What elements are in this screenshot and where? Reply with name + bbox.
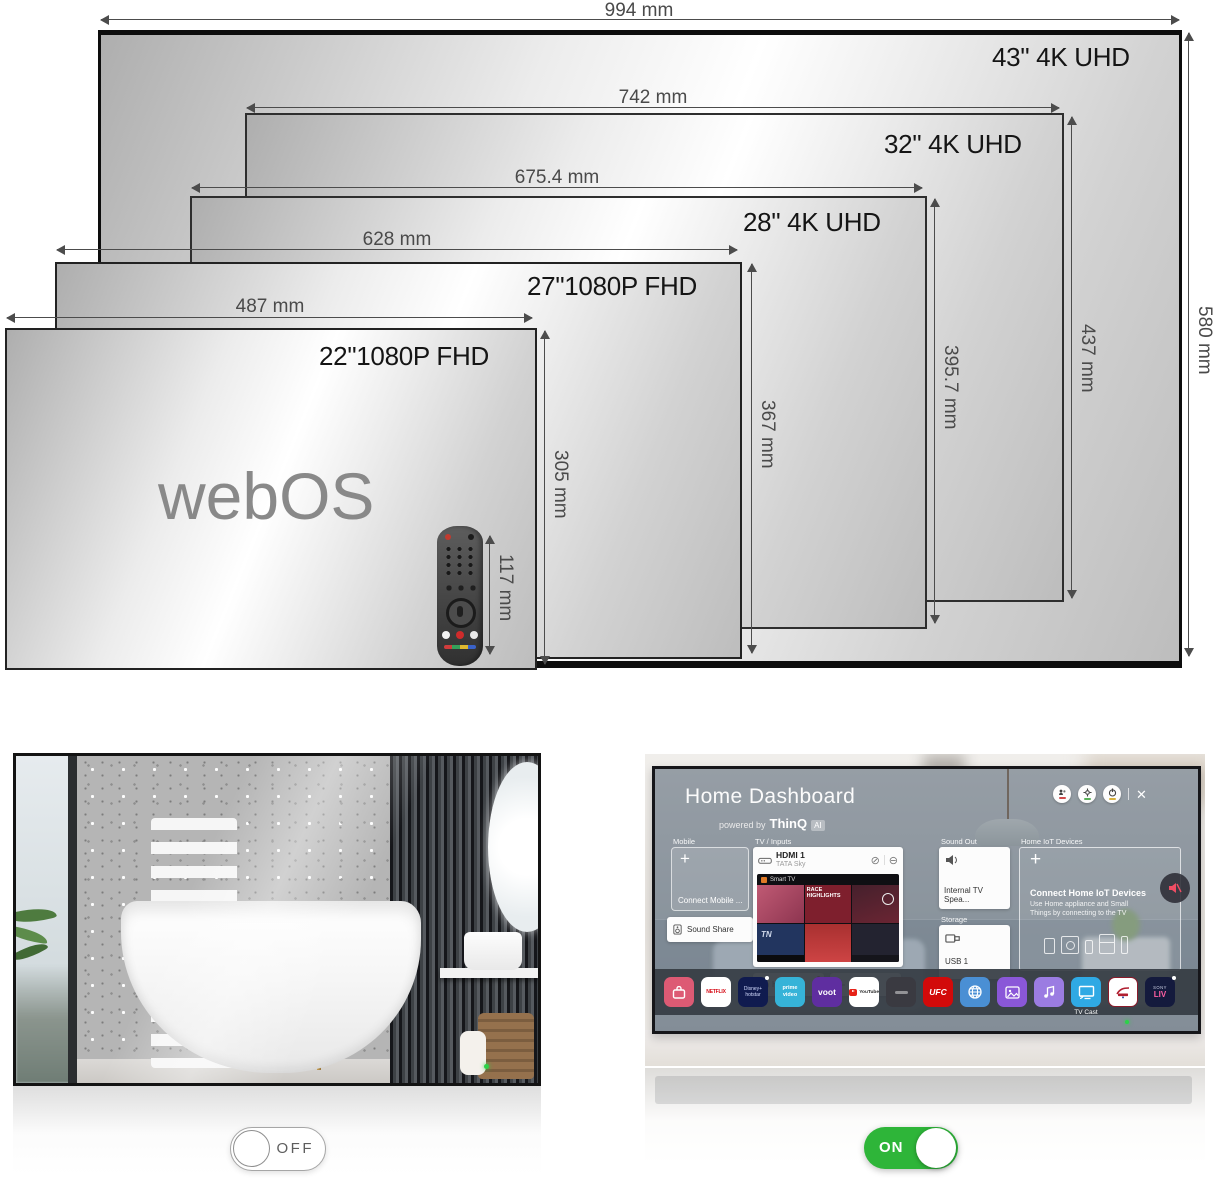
- mirror-glare: [16, 756, 538, 1083]
- toggle-knob[interactable]: [916, 1128, 956, 1168]
- app-sony-liv[interactable]: SONY LIV: [1145, 977, 1175, 1007]
- thumbnail: CHARLO vs MONTIEL: [852, 924, 899, 962]
- app-tv-cast[interactable]: TV Cast: [1071, 977, 1101, 1007]
- mute-button[interactable]: [1160, 873, 1190, 903]
- tv-cast-icon: [1078, 985, 1095, 1000]
- toggle-on-label: ON: [879, 1139, 904, 1156]
- phone-outline-icon: [1085, 940, 1093, 954]
- section-label-home-iot: Home IoT Devices: [1021, 837, 1083, 846]
- youtube-wordmark: YouTube: [859, 990, 879, 995]
- netflix-wordmark: NETFLIX: [706, 989, 725, 995]
- height-arrow-27: [751, 264, 752, 653]
- plus-icon: +: [1030, 849, 1041, 871]
- gallery-icon: [1005, 986, 1020, 999]
- section-label-sound-out: Sound Out: [941, 837, 977, 846]
- prime-wordmark-2: video: [783, 992, 797, 999]
- power-button[interactable]: [1103, 785, 1121, 803]
- height-label-27: 367 mm: [756, 400, 778, 469]
- app-voot[interactable]: voot: [812, 977, 842, 1007]
- remote-height-label: 117 mm: [494, 554, 516, 621]
- remote-power-button-icon: [445, 534, 451, 540]
- app-sports-tile[interactable]: [1108, 977, 1138, 1007]
- dashboard-topbar: ✕: [1053, 785, 1147, 803]
- size-label-22: 22"1080P FHD: [319, 341, 489, 372]
- prime-wordmark-1: prime: [783, 985, 798, 992]
- sound-share-card[interactable]: Sound Share: [667, 917, 753, 942]
- speaker-outline-icon: [1044, 938, 1055, 954]
- remote-outline-icon: [1121, 936, 1128, 954]
- remote-height-arrow: [489, 536, 490, 654]
- section-label-storage: Storage: [941, 915, 967, 924]
- width-label-32: 742 mm: [553, 87, 753, 109]
- thinq-brand: ThinQ: [770, 816, 808, 831]
- product-infographic: webOS 994 mm 742 mm 675.4 mm 628 mm 487 …: [0, 0, 1214, 1191]
- header-divider: [884, 855, 885, 865]
- thumbnail-caption: RACE HIGHLIGHTS: [807, 887, 841, 900]
- thumbnail: [852, 885, 899, 923]
- speaker-icon: [945, 854, 959, 866]
- size-label-32: 32" 4K UHD: [884, 129, 1022, 160]
- toggle-knob[interactable]: [233, 1130, 270, 1167]
- powered-by-line: powered by ThinQ AI: [719, 816, 825, 831]
- hdmi1-title: HDMI 1: [776, 851, 806, 860]
- height-label-43: 580 mm: [1193, 306, 1214, 375]
- iot-appliance-icons: [1044, 934, 1128, 954]
- ai-badge: AI: [811, 820, 825, 831]
- usb-icon: [945, 933, 961, 944]
- globe-icon: [967, 984, 983, 1000]
- washer-outline-icon: [1061, 936, 1079, 954]
- hdmi1-input-card[interactable]: HDMI 1 TATA Sky ⊘ ⊖ Smart TV: [753, 847, 903, 967]
- power-toggle-on[interactable]: ON: [864, 1127, 958, 1169]
- thumbnail: RACE HIGHLIGHTS: [805, 885, 852, 923]
- app-ufc[interactable]: UFC: [923, 977, 953, 1007]
- power-led: [1125, 1020, 1129, 1024]
- disney-wordmark-2: hotstar: [745, 992, 760, 998]
- size-label-28: 28" 4K UHD: [743, 207, 881, 238]
- remote-input-button-icon: [468, 534, 474, 540]
- thumbnail: TN INSIDE GUYS: [757, 924, 804, 962]
- usb-label: USB 1: [945, 957, 968, 966]
- power-toggle-off[interactable]: OFF: [230, 1127, 326, 1171]
- wordmark-placeholder: [895, 991, 908, 994]
- dock-reflection: [655, 1076, 1192, 1104]
- sound-share-icon: [672, 924, 683, 935]
- plus-icon: +: [680, 849, 690, 869]
- remote-volume-keys: [443, 580, 477, 596]
- ufc-wordmark: UFC: [929, 987, 946, 997]
- bathroom-mirror-off-photo: [13, 753, 541, 1086]
- fridge-outline-icon: [1099, 934, 1115, 954]
- caption-strip: CHARLO vs MONTIEL: [852, 955, 899, 962]
- yellow-underline: [1109, 798, 1116, 800]
- thumbnail: [805, 924, 852, 962]
- app-dock: NETFLIX Disney+ hotstar prime video voot…: [655, 969, 1198, 1015]
- tn-logo: TN: [761, 930, 772, 939]
- preview-thumbnails: RACE HIGHLIGHTS TN INSIDE GUYS CHARLO vs…: [757, 885, 899, 962]
- family-settings-button[interactable]: [1053, 785, 1071, 803]
- size-label-43: 43" 4K UHD: [992, 42, 1130, 73]
- remove-icon[interactable]: ⊖: [889, 854, 898, 867]
- app-lg-store[interactable]: [664, 977, 694, 1007]
- size-label-27: 27"1080P FHD: [527, 271, 697, 302]
- height-arrow-43: [1188, 33, 1189, 656]
- width-label-27: 628 mm: [297, 229, 497, 251]
- hdmi1-subtitle: TATA Sky: [776, 861, 806, 869]
- connect-mobile-label: Connect Mobile ...: [678, 896, 742, 905]
- music-note-icon: [1043, 985, 1056, 999]
- settings-button[interactable]: [1078, 785, 1096, 803]
- app-prime-video[interactable]: prime video: [775, 977, 805, 1007]
- remote-prime-button: [470, 631, 478, 639]
- tabletop: [645, 1030, 1205, 1066]
- height-label-32: 437 mm: [1076, 324, 1098, 393]
- height-arrow-28: [934, 199, 935, 623]
- power-icon: [1108, 788, 1117, 797]
- liv-wordmark: LIV: [1154, 990, 1166, 999]
- hdmi1-live-preview[interactable]: Smart TV RACE HIGHLIGHTS TN INSIDE GUYS: [757, 874, 899, 962]
- sports-logo-icon: [1115, 985, 1131, 999]
- red-underline: [1059, 797, 1066, 799]
- smart-tv-brand: Smart TV: [770, 877, 795, 883]
- notification-badge: [1172, 976, 1176, 980]
- green-underline: [1084, 798, 1091, 800]
- caption-strip: INSIDE GUYS: [757, 955, 804, 962]
- width-label-43: 994 mm: [539, 0, 739, 22]
- mute-speaker-icon: [1168, 882, 1182, 894]
- section-label-mobile: Mobile: [673, 837, 695, 846]
- section-label-tv-inputs: TV / Inputs: [755, 837, 791, 846]
- remote-color-keys: [444, 645, 476, 649]
- smart-tv-logo-icon: [761, 877, 767, 883]
- hdmi1-card-header: HDMI 1 TATA Sky ⊘ ⊖: [753, 847, 903, 873]
- app-music[interactable]: [1034, 977, 1064, 1007]
- height-label-28: 395.7 mm: [939, 345, 961, 429]
- height-label-22: 305 mm: [549, 450, 571, 519]
- iot-description: Use Home appliance and Small Things by c…: [1030, 900, 1148, 918]
- notification-badge: [765, 976, 769, 980]
- toggle-off-label: OFF: [277, 1140, 315, 1157]
- app-web-browser[interactable]: [960, 977, 990, 1007]
- width-label-28: 675.4 mm: [457, 167, 657, 189]
- topbar-divider: [1128, 788, 1129, 800]
- magic-remote: [437, 526, 483, 666]
- block-icon[interactable]: ⊘: [871, 854, 880, 867]
- app-dark-tile[interactable]: [886, 977, 916, 1007]
- width-label-22: 487 mm: [170, 296, 370, 318]
- height-arrow-32: [1071, 117, 1072, 598]
- remote-number-keys: [443, 545, 477, 577]
- youtube-play-icon: [849, 989, 857, 996]
- sound-out-value: Internal TV Spea...: [944, 886, 1010, 904]
- remote-white-button: [442, 631, 450, 639]
- remote-netflix-button: [456, 631, 464, 639]
- app-photo-gallery[interactable]: [997, 977, 1027, 1007]
- users-icon: [1058, 789, 1067, 796]
- app-youtube[interactable]: YouTube: [849, 977, 879, 1007]
- thumbnail: [757, 885, 804, 923]
- app-netflix[interactable]: NETFLIX: [701, 977, 731, 1007]
- powered-by-text: powered by: [719, 820, 766, 830]
- close-icon[interactable]: ✕: [1136, 788, 1147, 801]
- sound-out-card[interactable]: Internal TV Spea...: [939, 847, 1010, 909]
- home-iot-card[interactable]: + Connect Home IoT Devices Use Home appl…: [1019, 847, 1181, 971]
- sound-share-label: Sound Share: [687, 925, 734, 934]
- gear-icon: [1083, 788, 1092, 797]
- height-arrow-22: [544, 331, 545, 664]
- set-top-box-icon: [758, 856, 772, 865]
- store-icon: [672, 986, 686, 999]
- app-disney-hotstar[interactable]: Disney+ hotstar: [738, 977, 768, 1007]
- smart-tv-screen: Home Dashboard powered by ThinQ AI: [652, 766, 1201, 1034]
- play-circle-icon: [882, 893, 894, 905]
- preview-topbar: Smart TV: [757, 874, 899, 885]
- bathroom-mirror-on-photo: Home Dashboard powered by ThinQ AI: [645, 754, 1205, 1066]
- remote-wheel-center: [457, 606, 463, 617]
- voot-wordmark: voot: [818, 987, 836, 997]
- iot-title: Connect Home IoT Devices: [1030, 888, 1146, 898]
- dashboard-title: Home Dashboard: [685, 785, 855, 809]
- tv-cast-label: TV Cast: [1066, 1009, 1106, 1016]
- webos-logo: webOS: [158, 458, 374, 534]
- connect-mobile-card[interactable]: + Connect Mobile ...: [671, 847, 749, 911]
